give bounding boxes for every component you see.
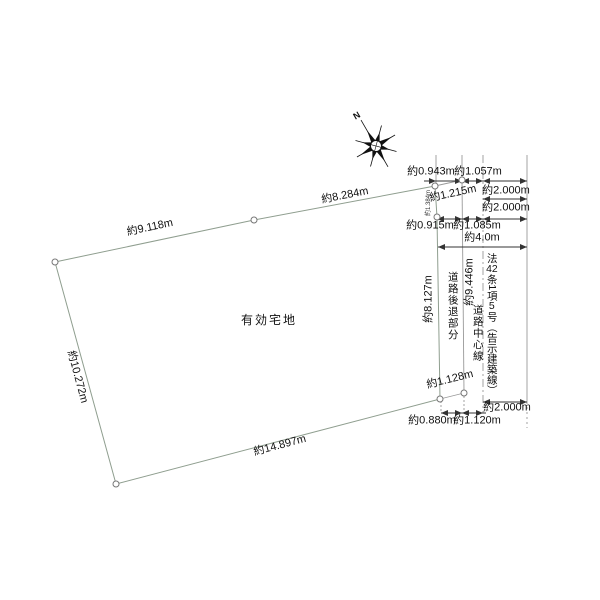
parcel-polygon bbox=[55, 186, 440, 484]
dim-bottom-right: 約1.120m bbox=[453, 416, 501, 427]
dim-row4-right: 約1.085m bbox=[453, 221, 501, 232]
dim-row1-left: 約0.943m bbox=[407, 167, 455, 178]
plot-survey-diagram: 有効宅地 約9.118m 約8.284m 約10.272m 約14.897m 約… bbox=[0, 0, 600, 600]
dim-bottom-offset: 約2.000m bbox=[483, 403, 531, 414]
road-centerline-label: 道路中心線 bbox=[471, 304, 483, 362]
legal-part: 項 bbox=[486, 290, 498, 301]
legal-building-line-label: 法42条1項5号（告示建築線） bbox=[485, 253, 497, 395]
dim-row2-offset: 約2.000m bbox=[482, 186, 530, 197]
legal-part: 5 bbox=[486, 301, 498, 312]
dim-row4-left: 約0.915m bbox=[406, 221, 454, 232]
dim-bottom-left: 約0.880m bbox=[408, 416, 456, 427]
legal-part: 42 bbox=[486, 263, 498, 274]
legal-part: 法 bbox=[486, 253, 498, 264]
edge-right-dim: 約8.127m bbox=[424, 275, 435, 323]
diagram-canvas bbox=[0, 0, 600, 600]
road-width-dim: 約4.0m bbox=[464, 233, 499, 244]
road-boundary-length-dim: 約9.446m bbox=[465, 258, 476, 306]
compass-icon bbox=[342, 109, 407, 178]
parcel-area-label: 有効宅地 bbox=[241, 314, 297, 326]
legal-part: 号（告示建築線） bbox=[486, 311, 498, 395]
vertex-markers bbox=[52, 177, 467, 487]
setback-strip-label: 道路後退部分 bbox=[446, 272, 458, 341]
dim-row1-right: 約1.057m bbox=[454, 167, 502, 178]
dim-row3-offset: 約2.000m bbox=[482, 203, 530, 214]
legal-part: 条 bbox=[486, 274, 498, 285]
